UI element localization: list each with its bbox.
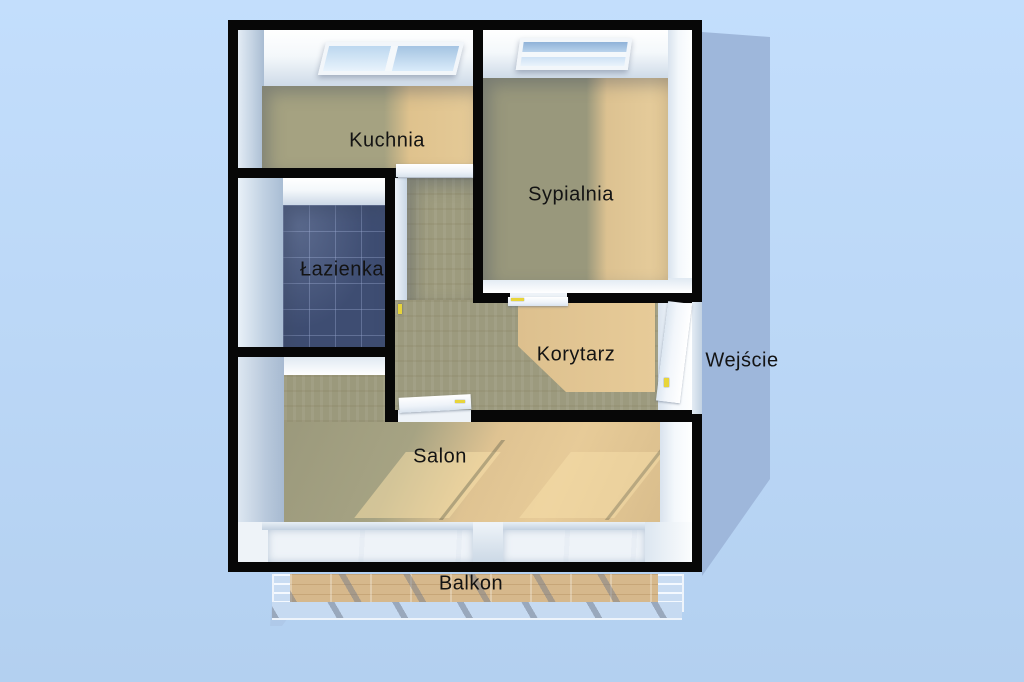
wall-corridor-south-left (385, 410, 398, 422)
floor-plan-scene: Kuchnia Sypialnia Łazienka Korytarz Wejś… (0, 0, 1024, 682)
kitchen-door (396, 164, 473, 177)
room-label-bedroom: Sypialnia (528, 184, 614, 207)
room-label-corridor: Korytarz (537, 344, 615, 367)
room-label-entrance: Wejście (705, 350, 778, 373)
wall-bathroom-east (385, 168, 395, 422)
bedroom-door-handle (511, 298, 524, 301)
wall-bedroom-south-left (473, 293, 510, 303)
wall-bathroom-south (238, 347, 395, 357)
room-label-kitchen: Kuchnia (349, 130, 425, 153)
balcony-railing-bottom (272, 602, 682, 620)
wall-corridor-south-right (471, 410, 702, 422)
wall-kitchen-south (238, 168, 398, 178)
room-label-bathroom: Łazienka (300, 259, 384, 282)
wall-bedroom-south-right (567, 293, 702, 303)
room-label-living-room: Salon (413, 446, 467, 469)
salon-door-handle (455, 400, 465, 403)
entrance-opening (692, 302, 702, 414)
room-label-balcony: Balkon (439, 573, 503, 596)
bathroom-door-handle (398, 304, 402, 314)
entrance-door-handle (664, 378, 669, 387)
wall-kitchen-bedroom (473, 30, 483, 303)
